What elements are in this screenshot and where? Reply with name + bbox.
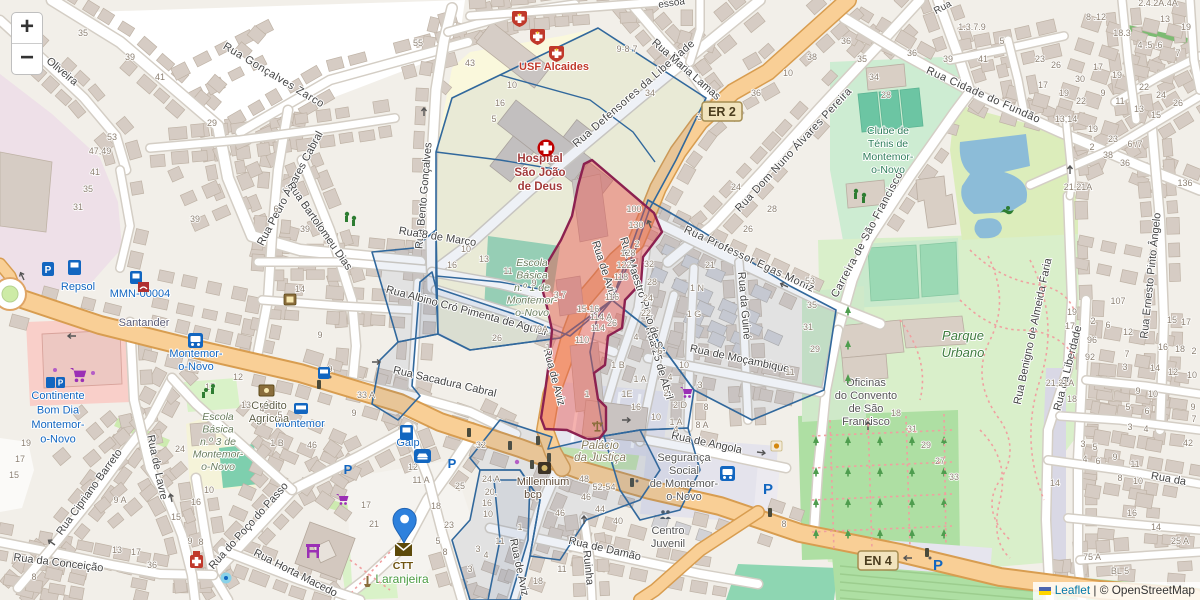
svg-text:1 B: 1 B xyxy=(270,438,284,448)
svg-text:18.3: 18.3 xyxy=(1113,28,1131,38)
svg-text:46: 46 xyxy=(581,492,591,502)
svg-text:11: 11 xyxy=(495,536,504,546)
svg-text:15: 15 xyxy=(1151,110,1161,120)
svg-text:130: 130 xyxy=(628,220,643,230)
svg-text:39: 39 xyxy=(300,224,310,234)
svg-text:P: P xyxy=(763,481,773,498)
svg-text:31: 31 xyxy=(73,202,83,212)
svg-text:28: 28 xyxy=(881,90,891,100)
svg-text:6 /7: 6 /7 xyxy=(1127,139,1142,149)
svg-text:16: 16 xyxy=(482,498,492,508)
svg-text:128: 128 xyxy=(620,248,635,258)
svg-text:7: 7 xyxy=(1124,349,1129,359)
svg-text:USF Alcaides: USF Alcaides xyxy=(519,61,589,73)
svg-text:53: 53 xyxy=(805,276,815,286)
svg-text:9: 9 xyxy=(317,330,322,340)
svg-text:8: 8 xyxy=(31,572,36,582)
svg-text:HospitalSão Joãode Deus: HospitalSão Joãode Deus xyxy=(514,153,565,193)
svg-text:2 D: 2 D xyxy=(673,400,688,410)
svg-text:92: 92 xyxy=(1085,352,1095,362)
svg-text:36: 36 xyxy=(147,560,157,570)
svg-text:35: 35 xyxy=(807,300,817,310)
svg-text:20,: 20, xyxy=(485,487,498,497)
svg-text:16: 16 xyxy=(631,402,641,412)
svg-text:16: 16 xyxy=(495,98,505,108)
svg-text:21,21A: 21,21A xyxy=(1064,182,1093,192)
svg-text:17: 17 xyxy=(1093,62,1103,72)
svg-text:8: 8 xyxy=(442,547,447,557)
svg-text:23: 23 xyxy=(444,520,454,530)
svg-text:10: 10 xyxy=(204,485,214,495)
svg-text:118: 118 xyxy=(614,272,628,282)
svg-text:10: 10 xyxy=(1148,389,1158,399)
svg-text:24: 24 xyxy=(1156,90,1166,100)
svg-text:8: 8 xyxy=(703,402,708,412)
svg-text:4: 4 xyxy=(483,550,488,560)
svg-text:22: 22 xyxy=(1139,82,1149,92)
svg-text:3.7: 3.7 xyxy=(554,290,567,300)
svg-text:52-54: 52-54 xyxy=(592,482,615,492)
svg-text:19: 19 xyxy=(1112,70,1122,80)
svg-text:2: 2 xyxy=(1090,316,1095,326)
svg-text:13: 13 xyxy=(479,254,489,264)
svg-text:19: 19 xyxy=(1059,88,1069,98)
svg-text:5: 5 xyxy=(491,114,496,124)
svg-text:16: 16 xyxy=(191,497,201,507)
svg-text:18: 18 xyxy=(1175,344,1185,354)
svg-text:bcp: bcp xyxy=(524,489,542,501)
svg-text:7: 7 xyxy=(1191,414,1196,424)
svg-text:17: 17 xyxy=(15,454,25,464)
svg-text:P: P xyxy=(58,379,64,388)
svg-text:3: 3 xyxy=(475,544,480,554)
svg-text:1 G: 1 G xyxy=(687,309,702,319)
svg-text:114: 114 xyxy=(591,323,605,333)
svg-text:17: 17 xyxy=(131,547,141,557)
svg-text:26: 26 xyxy=(743,224,753,234)
svg-text:10: 10 xyxy=(783,68,793,78)
svg-text:122: 122 xyxy=(616,260,631,270)
svg-text:42: 42 xyxy=(1183,438,1193,448)
svg-text:11: 11 xyxy=(1130,459,1139,469)
svg-text:19: 19 xyxy=(1181,22,1191,32)
svg-text:6: 6 xyxy=(273,204,278,214)
svg-text:9: 9 xyxy=(187,536,192,546)
svg-text:14: 14 xyxy=(1150,363,1160,373)
svg-text:6: 6 xyxy=(1105,320,1110,330)
svg-text:16: 16 xyxy=(1158,342,1168,352)
svg-text:12: 12 xyxy=(408,462,418,472)
svg-text:25 A: 25 A xyxy=(1171,536,1189,546)
svg-text:33: 33 xyxy=(949,472,959,482)
svg-text:35: 35 xyxy=(78,28,88,38)
svg-text:2.4.2A.4A: 2.4.2A.4A xyxy=(1138,0,1178,8)
svg-text:9: 9 xyxy=(531,278,536,288)
svg-text:3: 3 xyxy=(1127,422,1132,432)
svg-text:4: 4 xyxy=(667,372,672,382)
svg-text:10: 10 xyxy=(507,80,517,90)
svg-text:21,21A: 21,21A xyxy=(1046,378,1075,388)
svg-text:100: 100 xyxy=(626,204,641,214)
svg-text:53: 53 xyxy=(107,132,117,142)
svg-text:13,14: 13,14 xyxy=(1055,114,1078,124)
svg-text:14: 14 xyxy=(1050,478,1060,488)
svg-text:35: 35 xyxy=(83,184,93,194)
svg-text:9: 9 xyxy=(351,408,356,418)
svg-text:21: 21 xyxy=(705,260,715,270)
svg-text:13: 13 xyxy=(1160,14,1170,24)
svg-text:34: 34 xyxy=(645,88,655,98)
svg-text:14: 14 xyxy=(1151,522,1161,532)
svg-text:26: 26 xyxy=(1173,98,1183,108)
svg-text:5: 5 xyxy=(1125,402,1130,412)
svg-text:28: 28 xyxy=(767,204,777,214)
svg-text:19: 19 xyxy=(1088,124,1098,134)
svg-text:CentroJuvenil: CentroJuvenil xyxy=(651,525,685,550)
svg-text:24 A: 24 A xyxy=(482,474,500,484)
svg-text:29: 29 xyxy=(207,118,217,128)
svg-text:16: 16 xyxy=(1127,508,1137,518)
svg-text:11: 11 xyxy=(557,564,566,574)
svg-text:11 A: 11 A xyxy=(412,475,429,485)
svg-text:Palácioda Justiça: Palácioda Justiça xyxy=(574,440,626,464)
svg-text:32: 32 xyxy=(476,440,486,450)
svg-text:BL 5: BL 5 xyxy=(1111,566,1129,576)
svg-text:3: 3 xyxy=(697,380,702,390)
svg-text:107: 107 xyxy=(1110,296,1125,306)
svg-text:17: 17 xyxy=(1181,317,1191,327)
svg-text:13: 13 xyxy=(1134,104,1144,114)
svg-text:9: 9 xyxy=(1190,402,1195,412)
svg-text:36: 36 xyxy=(751,88,761,98)
svg-text:4: 4 xyxy=(1082,454,1087,464)
svg-text:25: 25 xyxy=(455,481,465,491)
svg-text:23: 23 xyxy=(1035,54,1045,64)
svg-text:1 N: 1 N xyxy=(690,283,704,293)
svg-text:8 .12: 8 .12 xyxy=(1086,12,1106,22)
svg-text:3: 3 xyxy=(467,564,472,574)
svg-text:12: 12 xyxy=(1168,367,1178,377)
svg-text:11: 11 xyxy=(503,266,512,276)
svg-text:1E: 1E xyxy=(621,389,632,399)
svg-text:1.3.7.9: 1.3.7.9 xyxy=(958,22,986,32)
svg-text:1 A: 1 A xyxy=(633,374,646,384)
svg-text:3: 3 xyxy=(1122,362,1127,372)
svg-text:4: 4 xyxy=(1143,424,1148,434)
svg-text:48: 48 xyxy=(579,474,589,484)
svg-text:96: 96 xyxy=(1087,335,1097,345)
svg-text:30: 30 xyxy=(1075,74,1085,84)
svg-text:38: 38 xyxy=(1103,150,1113,160)
svg-text:5: 5 xyxy=(435,536,440,546)
svg-text:38: 38 xyxy=(807,52,817,62)
svg-text:10: 10 xyxy=(651,412,661,422)
svg-text:29: 29 xyxy=(810,344,820,354)
svg-text:32: 32 xyxy=(644,259,654,269)
svg-text:28: 28 xyxy=(647,277,657,287)
svg-text:29: 29 xyxy=(921,440,931,450)
svg-text:21: 21 xyxy=(369,519,379,529)
svg-text:4: 4 xyxy=(259,404,264,414)
svg-text:55: 55 xyxy=(413,38,423,48)
svg-text:15: 15 xyxy=(171,512,181,522)
svg-text:8: 8 xyxy=(198,537,203,547)
svg-text:47,49: 47,49 xyxy=(89,146,112,156)
svg-text:8: 8 xyxy=(781,519,786,529)
svg-text:36: 36 xyxy=(841,36,851,46)
svg-text:18: 18 xyxy=(533,576,543,586)
svg-text:9: 9 xyxy=(1100,88,1105,98)
svg-text:39: 39 xyxy=(125,52,135,62)
svg-text:5: 5 xyxy=(999,36,1004,46)
svg-text:3: 3 xyxy=(1080,439,1085,449)
svg-text:14: 14 xyxy=(295,284,305,294)
svg-text:46: 46 xyxy=(555,508,565,518)
svg-text:19: 19 xyxy=(1067,307,1077,317)
svg-text:46: 46 xyxy=(307,440,317,450)
svg-text:10: 10 xyxy=(483,509,493,519)
svg-text:24: 24 xyxy=(731,182,741,192)
svg-text:Laranjeira: Laranjeira xyxy=(375,572,429,586)
svg-text:40: 40 xyxy=(613,516,623,526)
svg-text:6: 6 xyxy=(1095,456,1100,466)
svg-text:36: 36 xyxy=(1120,158,1130,168)
svg-text:9: 9 xyxy=(1135,386,1140,396)
svg-text:43: 43 xyxy=(465,58,475,68)
svg-text:41: 41 xyxy=(978,54,988,64)
svg-text:2: 2 xyxy=(1089,142,1094,152)
svg-text:44: 44 xyxy=(595,504,605,514)
svg-text:9·8·7: 9·8·7 xyxy=(616,44,637,54)
svg-text:17: 17 xyxy=(1065,321,1075,331)
svg-text:ER 2: ER 2 xyxy=(708,105,736,119)
svg-text:2: 2 xyxy=(1191,346,1196,356)
svg-text:Repsol: Repsol xyxy=(61,281,95,293)
svg-text:CréditoAgrícola: CréditoAgrícola xyxy=(249,400,290,425)
svg-text:Millennium: Millennium xyxy=(517,476,570,488)
svg-text:8 A: 8 A xyxy=(695,420,708,430)
svg-text:P: P xyxy=(344,462,353,477)
svg-text:79A: 79A xyxy=(532,324,548,334)
svg-text:10: 10 xyxy=(1133,476,1143,486)
svg-text:1 A: 1 A xyxy=(669,417,682,427)
svg-text:39: 39 xyxy=(943,54,953,64)
svg-text:75 A: 75 A xyxy=(1083,552,1101,562)
svg-text:22: 22 xyxy=(1076,96,1086,106)
svg-text:26: 26 xyxy=(1051,60,1061,70)
svg-text:22: 22 xyxy=(641,308,651,318)
svg-text:110: 110 xyxy=(575,335,589,345)
svg-text:CTT: CTT xyxy=(393,560,414,572)
svg-text:11: 11 xyxy=(785,367,794,377)
svg-text:18: 18 xyxy=(1067,394,1077,404)
svg-text:6: 6 xyxy=(657,346,662,356)
svg-text:33 A: 33 A xyxy=(357,390,375,400)
svg-text:24: 24 xyxy=(643,293,653,303)
svg-text:24: 24 xyxy=(175,444,185,454)
svg-text:1: 1 xyxy=(517,522,522,532)
svg-text:1: 1 xyxy=(545,342,550,352)
svg-text:9: 9 xyxy=(1112,452,1117,462)
svg-text:10: 10 xyxy=(461,244,471,254)
svg-text:P: P xyxy=(448,456,457,471)
svg-text:18: 18 xyxy=(431,501,441,511)
svg-text:5: 5 xyxy=(1092,442,1097,452)
svg-text:2: 2 xyxy=(663,388,668,398)
svg-text:136: 136 xyxy=(1177,178,1192,188)
svg-text:10: 10 xyxy=(1187,370,1197,380)
svg-text:36: 36 xyxy=(907,48,917,58)
svg-text:15: 15 xyxy=(1167,315,1177,325)
svg-text:34: 34 xyxy=(869,72,879,82)
svg-text:4 .5 .6: 4 .5 .6 xyxy=(1137,40,1162,50)
svg-text:4: 4 xyxy=(633,332,638,342)
svg-text:Santander: Santander xyxy=(119,317,170,329)
svg-text:11: 11 xyxy=(1115,96,1124,106)
svg-text:12: 12 xyxy=(233,372,243,382)
svg-text:P: P xyxy=(45,265,52,276)
svg-text:1: 1 xyxy=(584,389,589,399)
svg-text:18: 18 xyxy=(891,408,901,418)
svg-text:8: 8 xyxy=(1117,473,1122,483)
svg-text:16: 16 xyxy=(447,260,457,270)
svg-text:27: 27 xyxy=(935,456,945,466)
svg-text:26: 26 xyxy=(492,333,502,343)
svg-text:10: 10 xyxy=(679,360,689,370)
svg-text:6: 6 xyxy=(1144,406,1149,416)
svg-text:116: 116 xyxy=(605,292,619,302)
svg-text:13: 13 xyxy=(112,545,122,555)
svg-text:17: 17 xyxy=(1038,80,1048,90)
svg-text:P: P xyxy=(933,557,943,574)
svg-text:41: 41 xyxy=(90,167,100,177)
svg-text:114 A: 114 A xyxy=(590,312,612,322)
svg-text:13: 13 xyxy=(241,400,251,410)
svg-text:15: 15 xyxy=(9,470,19,480)
svg-text:7: 7 xyxy=(1175,48,1180,58)
svg-text:19: 19 xyxy=(21,438,31,448)
svg-text:31: 31 xyxy=(803,322,813,332)
svg-text:1 B: 1 B xyxy=(611,360,625,370)
svg-text:EN 4: EN 4 xyxy=(864,554,892,568)
svg-text:39: 39 xyxy=(190,214,200,224)
svg-text:17: 17 xyxy=(361,500,371,510)
svg-text:41: 41 xyxy=(155,72,165,82)
svg-text:5: 5 xyxy=(277,410,282,420)
svg-text:9 A: 9 A xyxy=(113,495,126,505)
svg-text:35: 35 xyxy=(857,54,867,64)
svg-text:12: 12 xyxy=(1123,327,1133,337)
svg-text:23: 23 xyxy=(1108,134,1118,144)
